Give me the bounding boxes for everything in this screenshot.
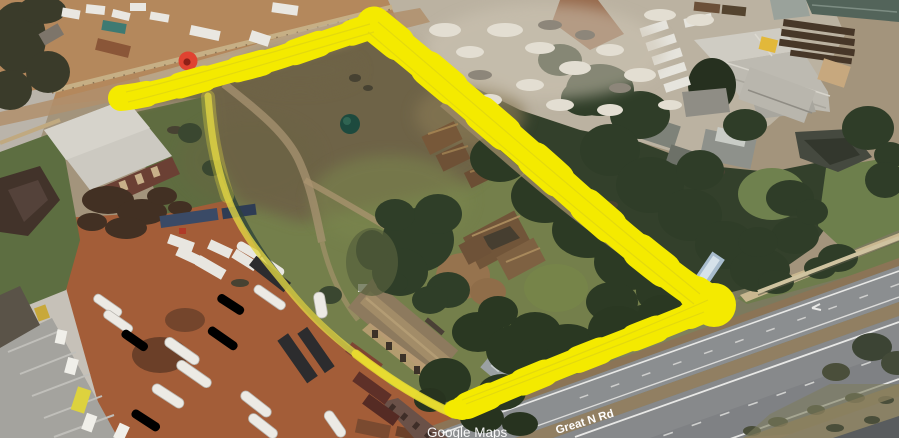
svg-text:Google Maps: Google Maps	[427, 425, 508, 438]
